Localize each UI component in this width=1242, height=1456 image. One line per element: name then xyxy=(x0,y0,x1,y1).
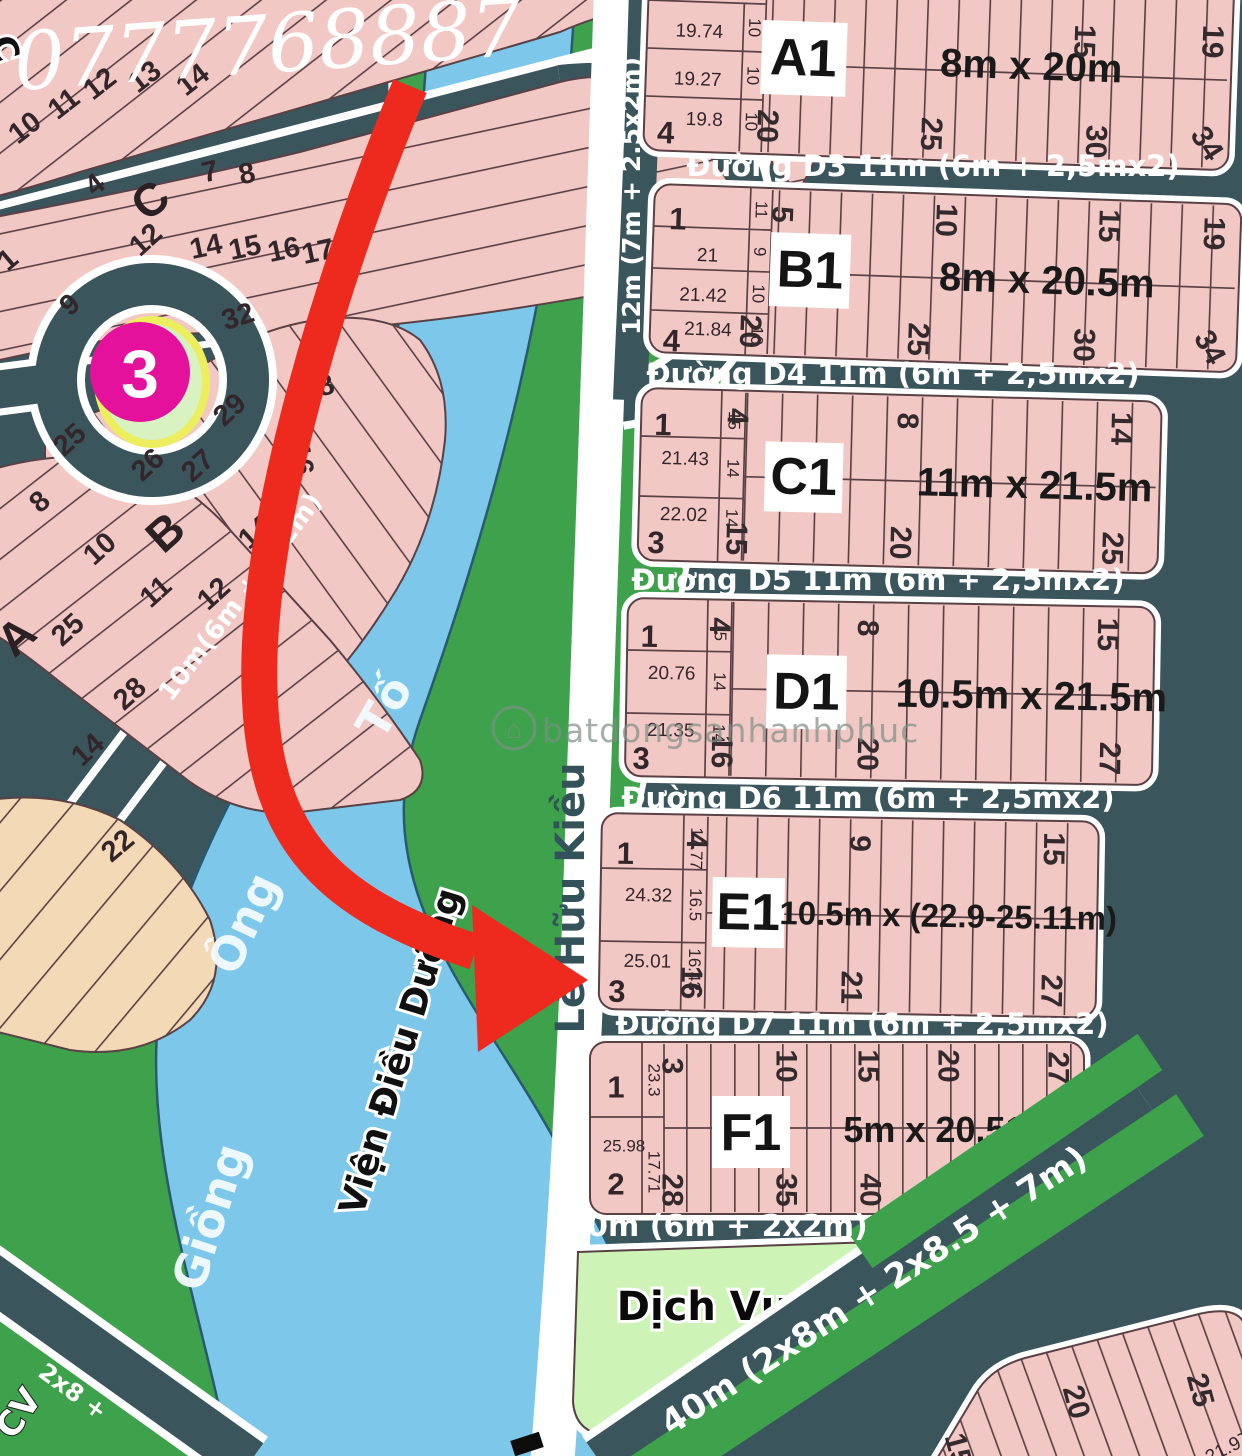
plot-side: 16.5 xyxy=(686,888,706,921)
plot-number: 16 xyxy=(265,231,303,269)
plot-number: 4 xyxy=(703,617,736,635)
plot-number: 2 xyxy=(607,1167,624,1202)
plot-number: 10 xyxy=(929,203,963,238)
plot-side: 10 xyxy=(748,284,768,304)
plot-number: 20 xyxy=(932,1049,965,1082)
road-label-d3: Đường D3 11m (6m + 2,5mx2) xyxy=(686,149,1179,183)
block-dimension: 8m x 20.5m xyxy=(938,255,1155,307)
block-label: A1 xyxy=(769,28,837,88)
plot-width: 25.01 xyxy=(623,951,671,973)
plot-number: 27 xyxy=(1092,741,1126,775)
road-label-d7: Đường D7 11m (6m + 2,5mx2) xyxy=(615,1007,1108,1041)
plot-number: 4 xyxy=(721,408,754,426)
plot-number: 21 xyxy=(834,970,868,1004)
plot-side: 10 xyxy=(745,18,765,38)
plot-width: 21 xyxy=(697,245,719,267)
plot-width: 19.74 xyxy=(675,20,724,43)
plot-number: 1 xyxy=(654,407,672,442)
plot-number: 19 xyxy=(1197,216,1231,251)
block-d1: 1 15 20.76 14 21.35 14 3 D1 10.5m x 21.5… xyxy=(625,598,1169,785)
block-c1: 1 15 21.43 14 22.02 14 3 C1 11m x 21.5m … xyxy=(637,388,1161,574)
plot-width: 21.84 xyxy=(684,319,733,342)
block-dimension: 10.5m x 21.5m xyxy=(895,672,1167,721)
plot-number: 4 xyxy=(680,832,713,850)
plot-number: 14 xyxy=(1104,411,1138,446)
plot-side: 14 xyxy=(723,459,742,478)
plot-number: 20 xyxy=(733,314,767,349)
plot-side: 14 xyxy=(710,672,729,691)
road-label-d6: Đường D6 11m (6m + 2,5mx2) xyxy=(621,781,1114,815)
plot-number: 25 xyxy=(901,322,935,357)
block-label: F1 xyxy=(721,1104,782,1162)
block-label: C1 xyxy=(770,447,838,507)
plot-number: 25 xyxy=(1095,531,1129,565)
plot-number: 3 xyxy=(608,974,626,1009)
plot-number: 20 xyxy=(750,109,784,144)
plot-number: 8 xyxy=(851,620,884,637)
plot-width: 19.8 xyxy=(685,109,723,131)
plot-number: 19 xyxy=(1195,24,1229,59)
road-label-d5: Đường D5 11m (6m + 2,5mx2) xyxy=(631,563,1124,597)
plot-number: 14 xyxy=(187,228,225,266)
land-plot-map: 3 19.74 10 19.27 10 4 19.8 10 A1 8m x 20… xyxy=(0,0,1242,1456)
plot-number: 27 xyxy=(1042,1051,1075,1084)
plot-width: 25.98 xyxy=(603,1137,646,1156)
plot-number: 15 xyxy=(1037,832,1071,866)
plot-number: 27 xyxy=(1034,974,1068,1008)
plot-side: 9 xyxy=(750,247,769,257)
road-label-below-f1: 10m (6m + 2x2m) xyxy=(566,1209,867,1244)
plot-number: 15 xyxy=(1092,209,1126,244)
plot-width: 21.43 xyxy=(661,448,709,470)
block-e1: 1 17.77 24.32 16.5 25.01 16.43 3 E1 10.5… xyxy=(599,813,1119,1018)
block-label: E1 xyxy=(716,883,781,942)
plot-width: 24.32 xyxy=(625,885,673,907)
marker-number: 3 xyxy=(121,336,159,412)
block-dimension: 10.5m x (22.9-25.11m) xyxy=(779,894,1117,937)
plot-number: 15 xyxy=(1067,24,1101,59)
block-label: B1 xyxy=(776,240,844,300)
road-label-left-vertical: 12m (7m + 2.5x2m) xyxy=(617,57,646,335)
plot-number: 4 xyxy=(662,323,681,359)
plot-number: 3 xyxy=(647,525,665,560)
map-canvas: 3 19.74 10 19.27 10 4 19.8 10 A1 8m x 20… xyxy=(0,0,1242,1456)
plot-number: 5 xyxy=(765,206,799,224)
plot-width: 20.76 xyxy=(648,663,696,685)
house-icon-glyph: ⌂ xyxy=(506,714,522,744)
plot-number: 15 xyxy=(1091,617,1125,651)
watermark-text: batdongsanhanhphuc xyxy=(542,711,919,750)
watermark: ⌂ batdongsanhanhphuc xyxy=(493,707,919,750)
plot-number: 28 xyxy=(656,1173,689,1206)
plot-number: 1 xyxy=(607,1070,624,1105)
plot-number: 10 xyxy=(770,1049,803,1082)
plot-width: 21.42 xyxy=(679,284,727,307)
plot-number: 25 xyxy=(914,117,948,152)
plot-number: 1 xyxy=(640,619,658,654)
plot-number: 1 xyxy=(669,201,687,237)
plot-number: 35 xyxy=(770,1173,803,1206)
plot-number: 1 xyxy=(616,836,634,871)
plot-width: 22.02 xyxy=(660,504,708,526)
road-label-d4: Đường D4 11m (6m + 2,5mx2) xyxy=(646,357,1139,391)
plot-number: 8 xyxy=(891,412,924,430)
plot-number: 15 xyxy=(226,229,264,267)
plot-side: 10 xyxy=(743,66,763,86)
plot-number: 3 xyxy=(656,1058,689,1075)
plot-number: 15 xyxy=(852,1049,885,1082)
block-dimension: 11m x 21.5m xyxy=(916,460,1153,510)
plot-number: 9 xyxy=(843,835,876,852)
plot-width: 19.27 xyxy=(674,68,722,91)
plot-number: 4 xyxy=(657,115,676,151)
block-a1: 19.74 10 19.27 10 4 19.8 10 A1 8m x 20m … xyxy=(643,0,1236,170)
block-b1: 1 11 21 9 21.42 10 4 21.84 10 B1 8m x 20… xyxy=(649,184,1242,378)
plot-number: 15 xyxy=(719,521,753,555)
plot-number: 16 xyxy=(674,966,708,1000)
plot-number: 40 xyxy=(854,1173,887,1206)
plot-number: 20 xyxy=(883,526,917,560)
